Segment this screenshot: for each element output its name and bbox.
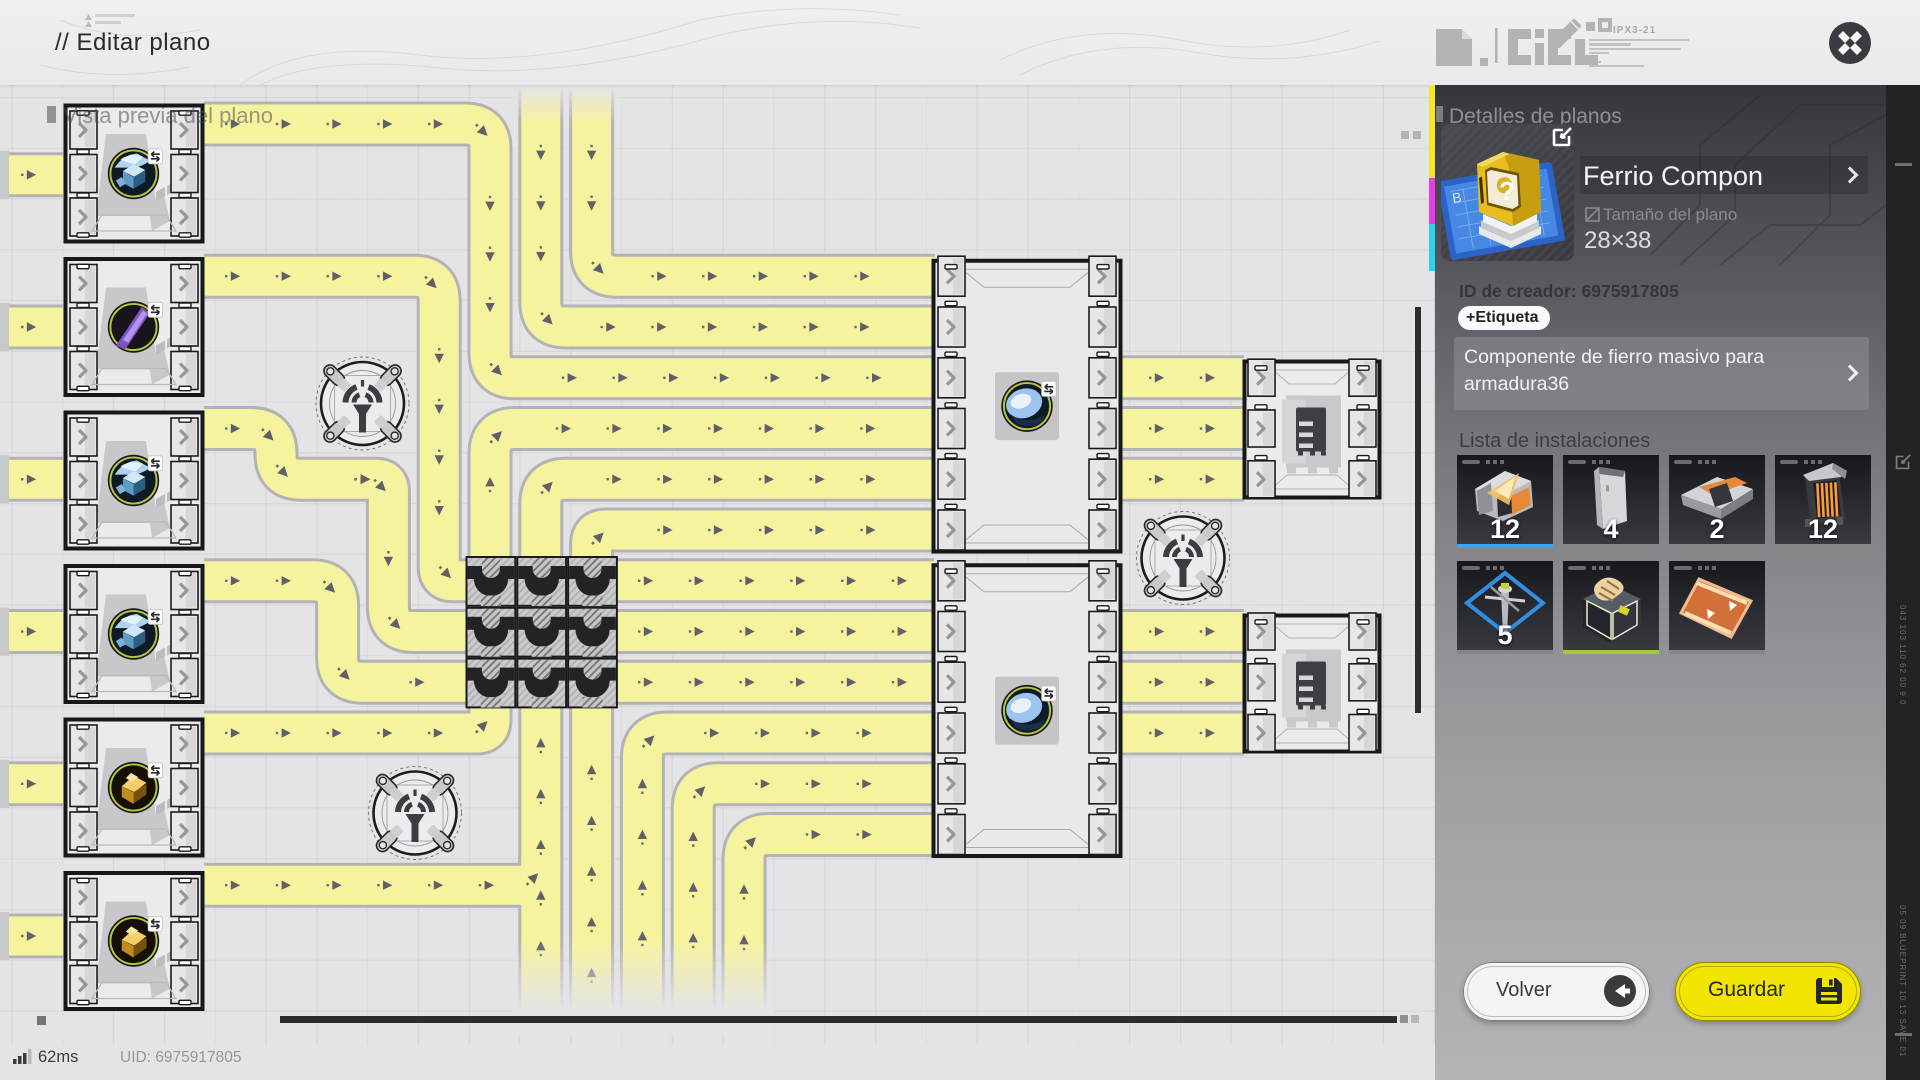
svg-text:?: ? bbox=[1499, 176, 1515, 206]
